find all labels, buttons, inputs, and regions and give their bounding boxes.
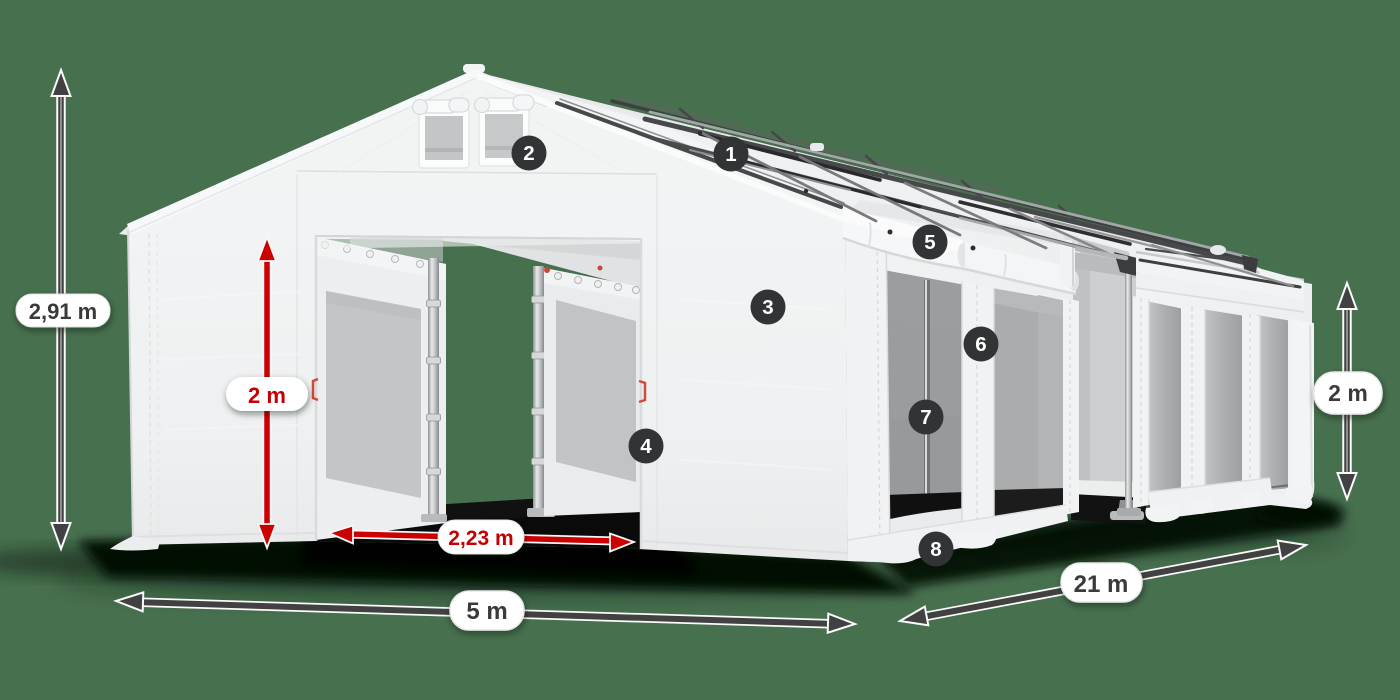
svg-text:6: 6 — [975, 333, 986, 356]
svg-text:2 m: 2 m — [248, 383, 286, 408]
svg-text:5 m: 5 m — [466, 598, 507, 625]
svg-text:21 m: 21 m — [1074, 571, 1129, 598]
svg-text:1: 1 — [725, 143, 736, 166]
svg-text:5: 5 — [924, 231, 935, 254]
svg-text:7: 7 — [920, 406, 931, 429]
svg-text:2: 2 — [523, 142, 534, 165]
svg-text:4: 4 — [640, 435, 652, 458]
svg-text:8: 8 — [930, 538, 941, 561]
svg-text:3: 3 — [762, 296, 773, 319]
svg-text:2,23 m: 2,23 m — [448, 527, 513, 550]
svg-text:2,91 m: 2,91 m — [29, 299, 98, 324]
svg-text:2 m: 2 m — [1328, 380, 1368, 406]
